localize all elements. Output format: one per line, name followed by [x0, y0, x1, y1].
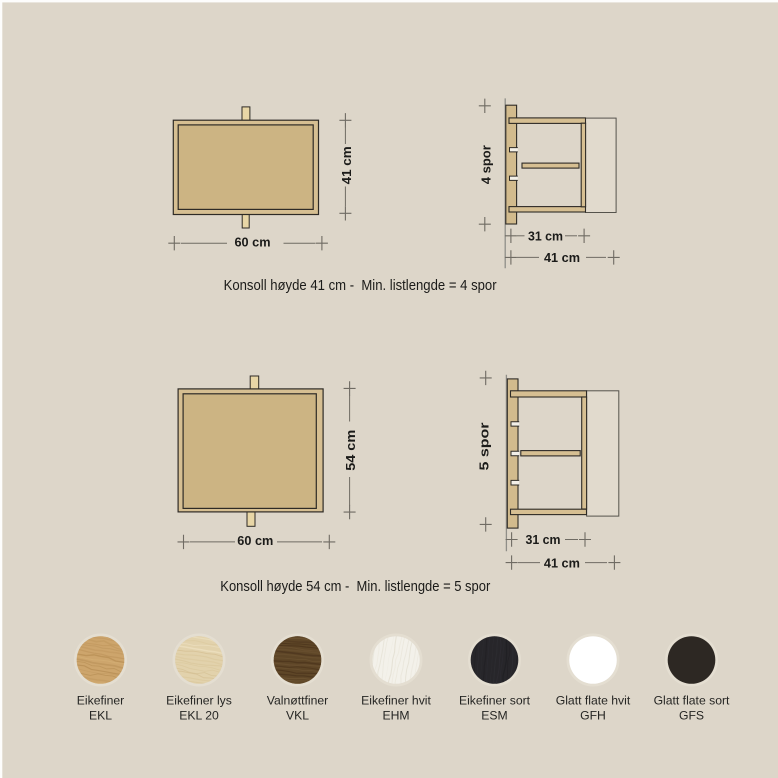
svg-text:EKL: EKL [89, 709, 112, 723]
svg-text:31 cm: 31 cm [528, 229, 563, 244]
svg-text:GFS: GFS [679, 709, 704, 723]
svg-text:Glatt flate sort: Glatt flate sort [654, 693, 730, 707]
svg-text:41 cm: 41 cm [544, 250, 580, 265]
svg-text:4 spor: 4 spor [479, 145, 494, 184]
svg-text:Konsoll høyde 54 cm - Min. li: Konsoll høyde 54 cm - Min. listlengde = … [220, 579, 490, 595]
svg-text:GFH: GFH [580, 709, 606, 723]
svg-text:54 cm: 54 cm [343, 430, 358, 471]
svg-text:Valnøttfiner: Valnøttfiner [267, 693, 328, 707]
svg-text:ESM: ESM [481, 709, 507, 723]
svg-text:Glatt flate hvit: Glatt flate hvit [556, 693, 631, 707]
svg-text:5 spor: 5 spor [476, 423, 491, 471]
svg-text:Eikefiner hvit: Eikefiner hvit [361, 693, 431, 707]
svg-text:41 cm: 41 cm [544, 555, 580, 570]
svg-text:60 cm: 60 cm [237, 533, 273, 548]
svg-text:60 cm: 60 cm [235, 234, 271, 249]
svg-text:Konsoll høyde 41 cm - Min. li: Konsoll høyde 41 cm - Min. listlengde = … [224, 278, 497, 294]
svg-text:EHM: EHM [382, 709, 409, 723]
svg-text:Eikefiner lys: Eikefiner lys [166, 693, 232, 707]
svg-text:EKL 20: EKL 20 [179, 709, 219, 723]
svg-text:VKL: VKL [286, 709, 309, 723]
svg-text:Eikefiner sort: Eikefiner sort [459, 693, 531, 707]
svg-text:31 cm: 31 cm [526, 532, 561, 547]
svg-text:Eikefiner: Eikefiner [77, 693, 124, 707]
svg-text:41 cm: 41 cm [339, 146, 354, 184]
